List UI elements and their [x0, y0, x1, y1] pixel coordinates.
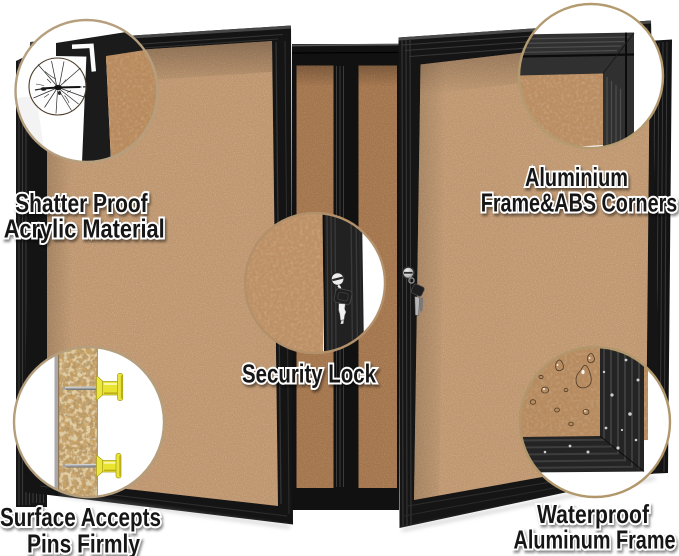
svg-text:Aluminum Frame: Aluminum Frame — [514, 525, 676, 555]
svg-text:Acrylic Material: Acrylic Material — [4, 213, 165, 243]
svg-text:Security Lock: Security Lock — [242, 358, 376, 388]
svg-text:Frame&ABS Corners: Frame&ABS Corners — [481, 187, 678, 217]
svg-text:Pins Firmly: Pins Firmly — [27, 528, 140, 556]
